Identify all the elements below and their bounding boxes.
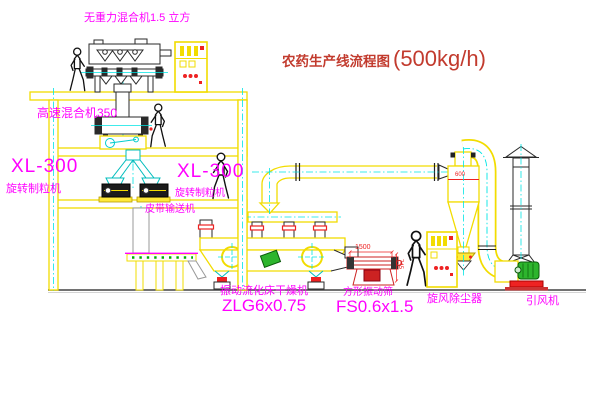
building-column-front: [238, 100, 247, 290]
belt-conveyor-drawing: [125, 208, 206, 290]
high-speed-mixer-drawing: [91, 117, 153, 149]
exhaust-stack: [503, 144, 539, 263]
granulator-left-drawing: [99, 184, 132, 202]
label-dryer-model: ZLG6x0.75: [222, 297, 306, 314]
diagram-title: 农药生产线流程图(500kg/h): [282, 46, 486, 72]
control-cabinet-upper: [175, 42, 207, 92]
dimension-sieve-length: 1500: [355, 244, 371, 251]
worker-icon: [151, 104, 166, 147]
label-sieve-model: FS0.6x1.5: [336, 298, 414, 315]
label-gravity-mixer: 无重力混合机1.5 立方: [84, 13, 190, 24]
label-granulator-right-name: 旋转制粒机: [175, 189, 225, 199]
label-high-speed-mixer: 高速混合机350: [37, 107, 117, 119]
label-fan: 引风机: [526, 296, 559, 307]
label-granulator-left-name: 旋转制粒机: [6, 184, 61, 195]
worker-icon: [407, 231, 426, 285]
title-text: 农药生产线流程图: [282, 54, 390, 69]
exhaust-duct: [252, 163, 450, 214]
induced-draft-fan-drawing: [495, 261, 548, 291]
control-cabinet-lower: [427, 232, 457, 287]
label-granulator-left-model: XL-300: [11, 157, 78, 176]
label-cyclone: 旋风除尘器: [427, 294, 482, 305]
dimension-sieve-height: 745: [397, 259, 403, 269]
dimension-cyclone-size: 600: [455, 172, 465, 178]
label-belt-conveyor: 皮带输送机: [145, 205, 195, 215]
granulator-right-drawing: [137, 184, 170, 202]
fluid-bed-dryer-drawing: [199, 212, 353, 289]
label-granulator-right-model: XL-300: [177, 162, 244, 181]
process-flow-diagram: 农药生产线流程图(500kg/h) 无重力混合机1.5 立方 高速混合机350 …: [0, 0, 600, 403]
title-capacity: (500kg/h): [393, 46, 486, 71]
worker-icon: [70, 48, 85, 91]
vibrating-sieve-drawing: [345, 247, 402, 285]
